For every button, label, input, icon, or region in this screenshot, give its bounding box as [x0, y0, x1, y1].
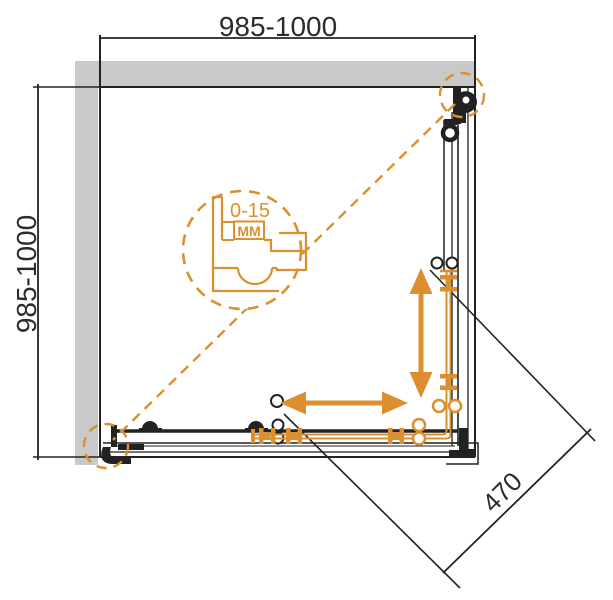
- adjustment-unit-label: MM: [237, 224, 260, 238]
- adjustment-range-label: 0-15: [230, 201, 270, 221]
- shower-enclosure-plan-diagram: 985-1000 985-1000 470 0-15 MM: [0, 0, 613, 600]
- slide-arrow-vertical-icon: [410, 268, 433, 398]
- enclosure-drawing: [0, 0, 613, 600]
- top-width-label: 985-1000: [219, 13, 337, 41]
- left-depth-label: 985-1000: [13, 215, 41, 333]
- diagonal-dimension-line: [284, 270, 595, 588]
- slide-arrow-horizontal-icon: [280, 392, 408, 415]
- sliding-door-rails: [251, 271, 461, 445]
